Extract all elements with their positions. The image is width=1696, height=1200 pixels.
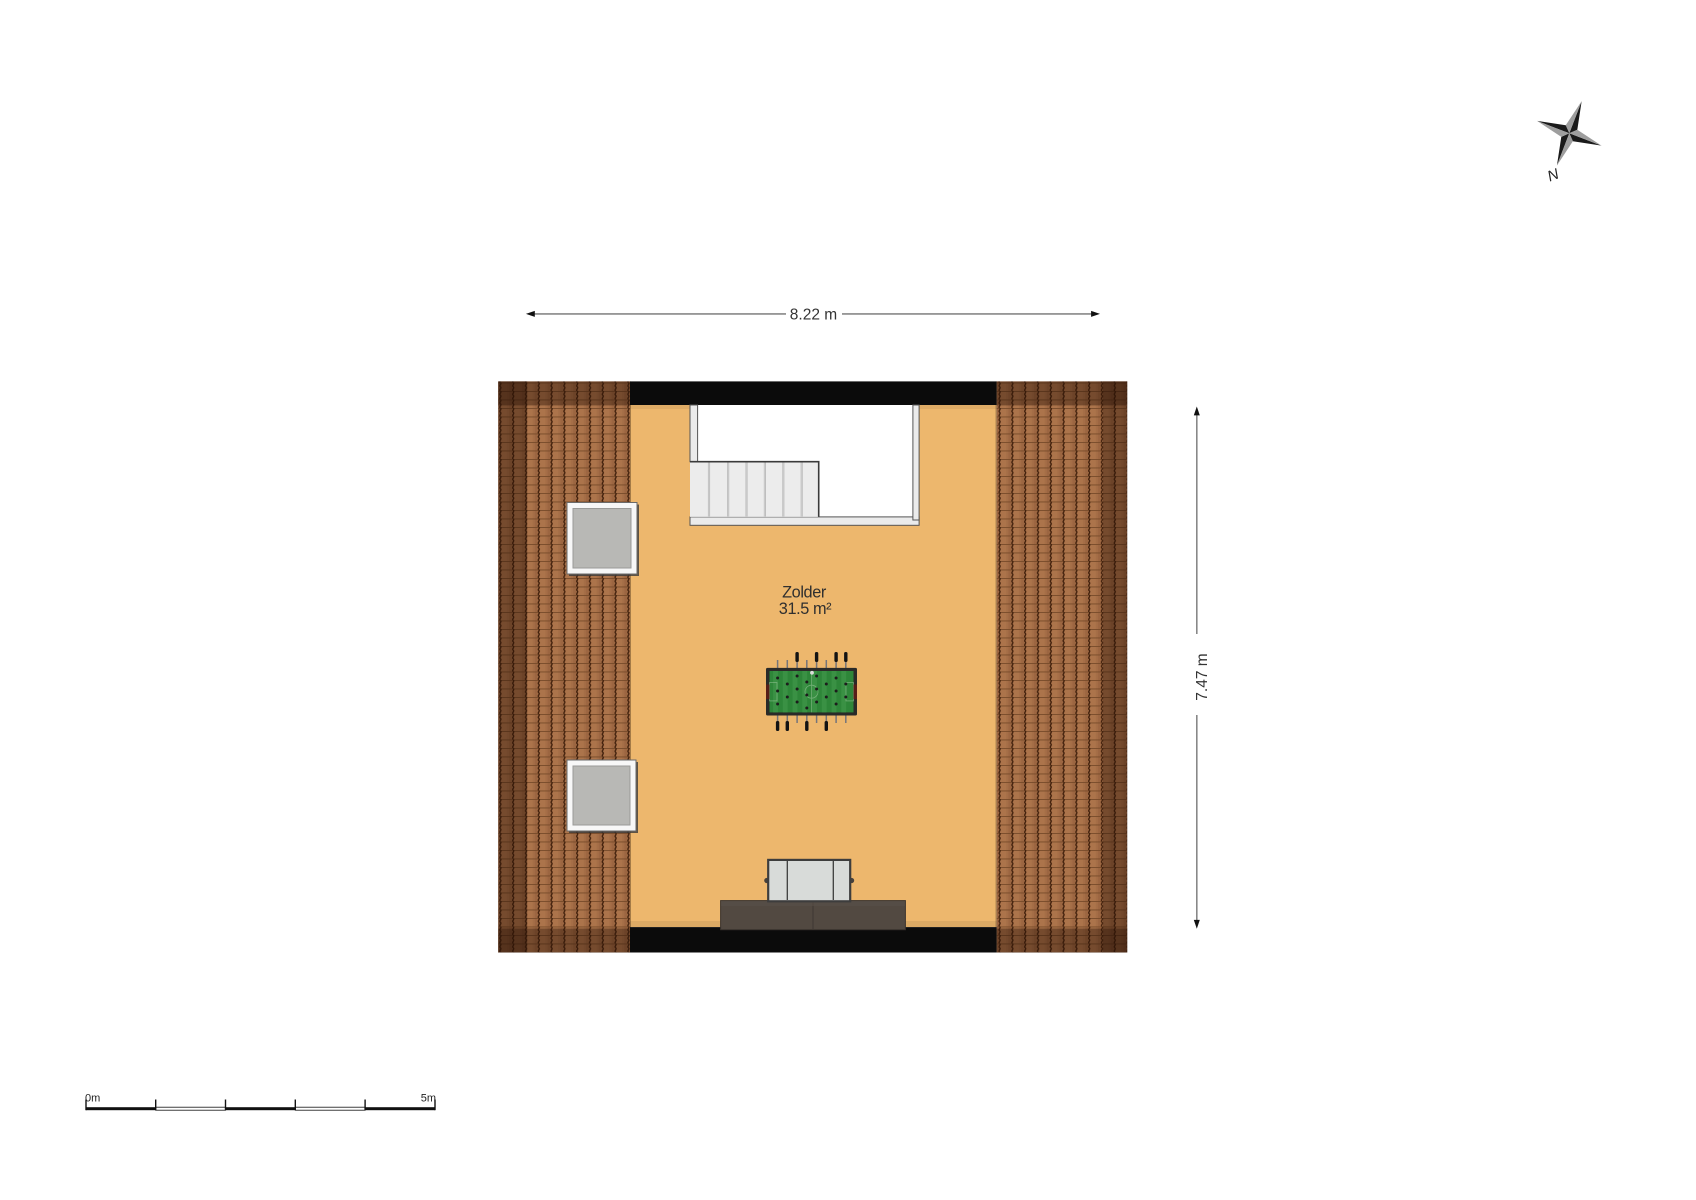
svg-text:0m: 0m [85, 1093, 100, 1105]
svg-text:8.22 m: 8.22 m [790, 306, 837, 323]
svg-text:7.47 m: 7.47 m [1194, 653, 1211, 700]
svg-text:Zolder: Zolder [782, 584, 827, 602]
svg-text:31.5 m²: 31.5 m² [779, 600, 832, 618]
svg-text:5m: 5m [421, 1093, 436, 1105]
